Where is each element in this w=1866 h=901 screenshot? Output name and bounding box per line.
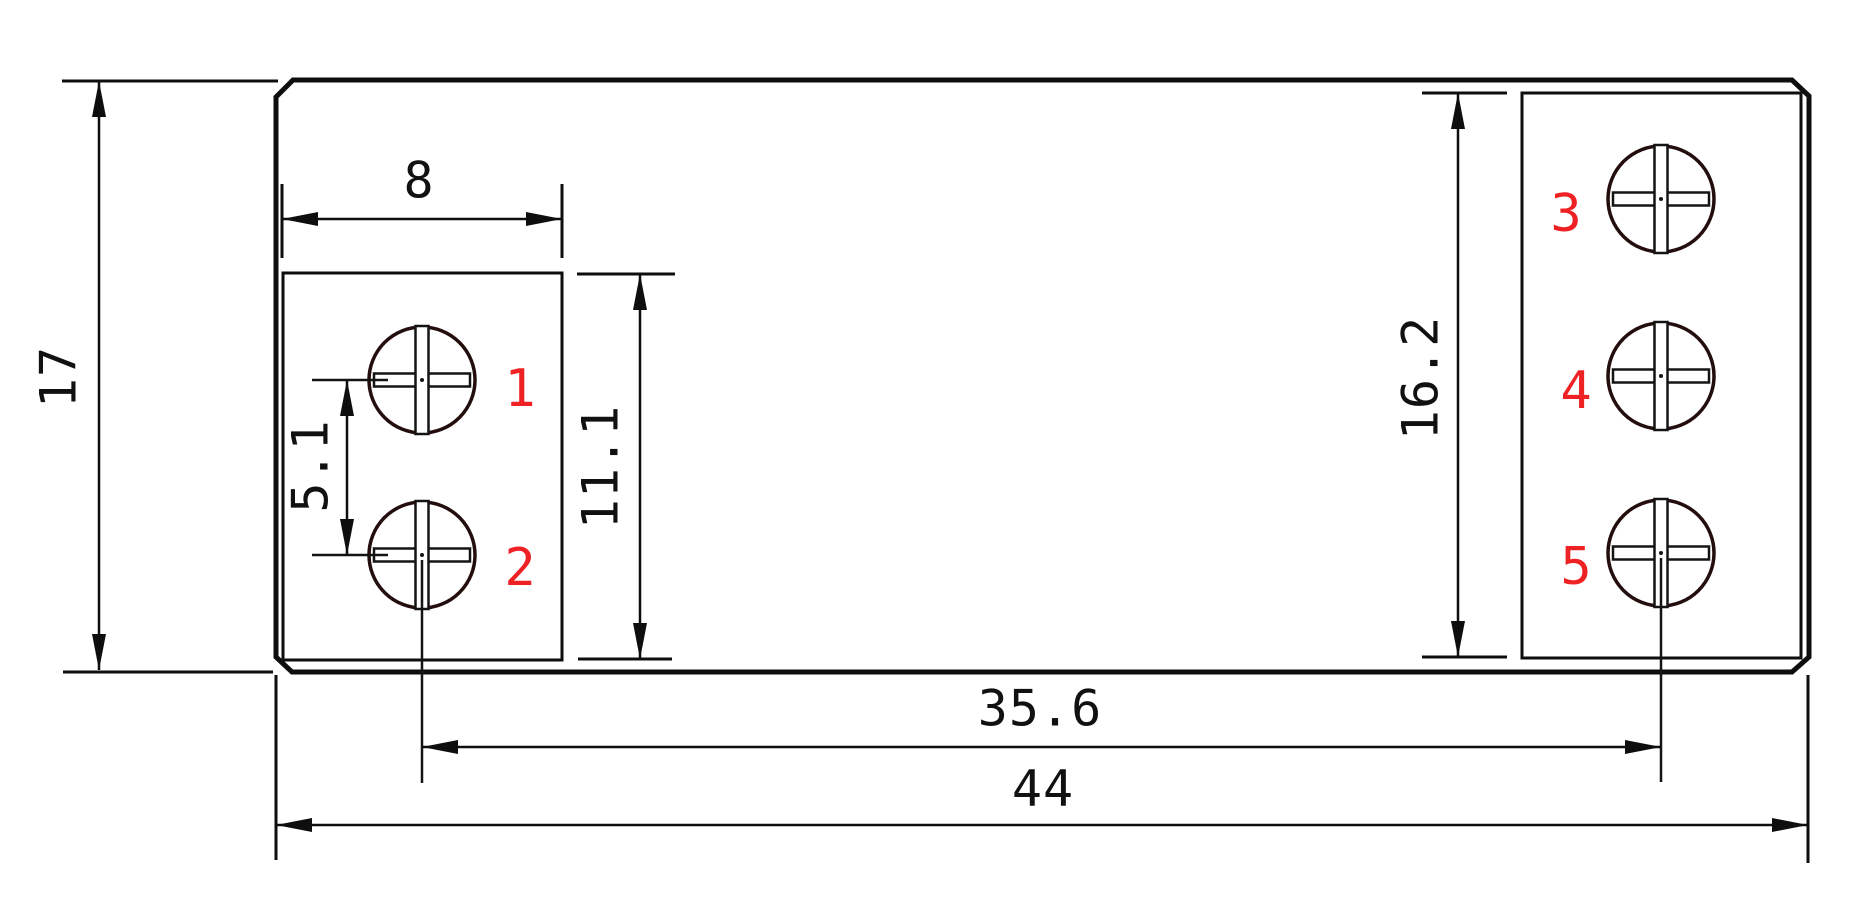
terminal-label-1: 1 [504, 359, 535, 419]
screw-center-dot [1659, 374, 1663, 378]
terminal-label-4: 4 [1560, 361, 1591, 421]
technical-drawing-page: 17 8 5.1 11.1 16.2 35.6 [0, 0, 1866, 901]
arrowhead-left-icon [276, 818, 312, 832]
dimension-value-block-width: 8 [403, 152, 434, 210]
dimension-value-height: 17 [30, 346, 88, 408]
dimension-drawing-canvas: 17 8 5.1 11.1 16.2 35.6 [0, 0, 1866, 901]
dimension-value-screw-pitch: 5.1 [282, 419, 340, 512]
screw-center-dot [420, 553, 424, 557]
screw-center-dot [420, 378, 424, 382]
terminal-label-2: 2 [504, 538, 535, 598]
screw-center-dot [1659, 551, 1663, 555]
arrowhead-down-icon [92, 634, 106, 670]
screw-center-dot [1659, 197, 1663, 201]
arrowhead-right-icon [1772, 818, 1808, 832]
dimension-value-screw-span: 35.6 [978, 680, 1102, 738]
arrowhead-left-icon [422, 740, 458, 754]
dimension-value-left-block-height: 11.1 [572, 405, 630, 529]
screw-terminal-4-icon [1608, 322, 1714, 430]
arrowhead-up-icon [92, 81, 106, 117]
arrowhead-right-icon [1625, 740, 1661, 754]
dimension-overall-height: 17 [30, 81, 279, 672]
screw-terminal-3-icon [1608, 145, 1714, 253]
terminal-label-3: 3 [1550, 184, 1581, 244]
dimension-value-right-block-height: 16.2 [1392, 316, 1450, 440]
dimension-screw-span: 35.6 [422, 680, 1661, 755]
terminal-label-5: 5 [1560, 537, 1591, 597]
dimension-value-overall-width: 44 [1012, 760, 1074, 818]
